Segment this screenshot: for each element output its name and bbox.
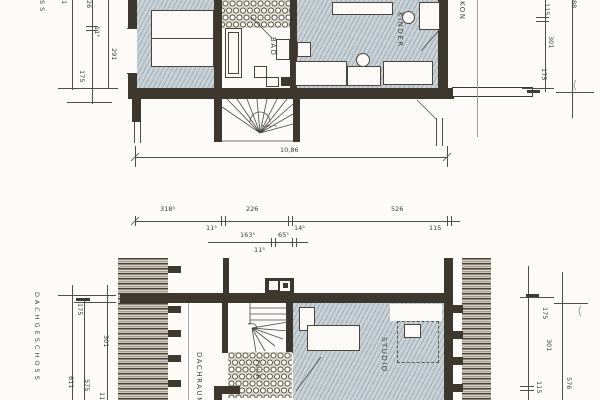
dim-slash-ticks [131, 153, 451, 225]
door-swing-entry [417, 100, 436, 119]
door-swing-kinder [421, 29, 440, 51]
door-swing-bath [251, 17, 272, 38]
stairs-and-doors-linework [0, 0, 600, 400]
curve-marks [574, 80, 581, 316]
lower-stair [248, 303, 288, 352]
door-swing-studio [296, 357, 321, 391]
upper-stair [222, 99, 293, 141]
floor-plan-sheet: 10,86 1 26 11⁵ 291 175 115 301 175 88 31… [0, 0, 600, 400]
